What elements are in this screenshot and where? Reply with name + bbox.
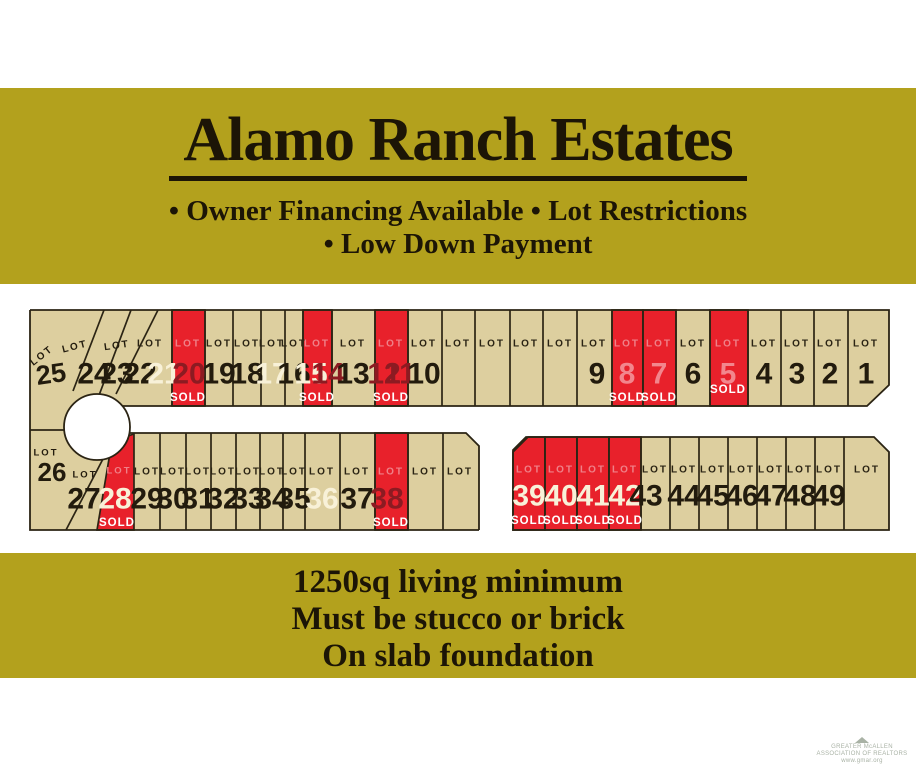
lot-label: LOT (137, 339, 163, 350)
lot-label: LOT (513, 339, 539, 350)
lot-number: 25 (34, 357, 68, 391)
lot-label: LOT (787, 465, 813, 476)
sold-label: SOLD (609, 392, 645, 404)
lot-label: LOT (160, 467, 186, 478)
sold-label: SOLD (607, 515, 643, 527)
lot-label: LOT (378, 467, 404, 478)
restriction-line-2: Must be stucco or brick (0, 601, 916, 638)
lot-label: LOT (680, 339, 706, 350)
lot-label: LOT (581, 339, 607, 350)
sold-label: SOLD (170, 392, 206, 404)
restrictions-text: 1250sq living minimum Must be stucco or … (0, 553, 916, 675)
lot-label: LOT (671, 465, 697, 476)
lot-number: 41 (576, 480, 609, 513)
sold-label: SOLD (373, 517, 409, 529)
restriction-line-1: 1250sq living minimum (0, 564, 916, 601)
lot-label: LOT (281, 467, 307, 478)
watermark-line-1: GREATER McALLEN (816, 744, 908, 751)
lot-number: 40 (544, 480, 577, 513)
sold-label: SOLD (99, 517, 135, 529)
cul-de-sac-circle (64, 394, 130, 460)
lot-label: LOT (234, 339, 260, 350)
flyer-page: Alamo Ranch Estates • Owner Financing Av… (0, 0, 916, 768)
lot-label: LOT (646, 339, 672, 350)
lot-label: LOT (411, 339, 437, 350)
lot-label: LOT (816, 465, 842, 476)
lot-label: LOT (235, 467, 261, 478)
lot-label: LOT (447, 467, 473, 478)
lot-label: LOT (853, 339, 879, 350)
lot-number: 3 (789, 358, 806, 391)
lot-number: 9 (589, 358, 606, 391)
sold-label: SOLD (511, 515, 547, 527)
restrictions-banner: 1250sq living minimum Must be stucco or … (0, 553, 916, 678)
lot-label: LOT (642, 465, 668, 476)
lot-label: LOT (344, 467, 370, 478)
watermark-line-2: ASSOCIATION OF REALTORS (816, 751, 908, 758)
lot-label: LOT (580, 465, 606, 476)
lot-label: LOT (548, 465, 574, 476)
lot-label: LOT (378, 339, 404, 350)
sold-label: SOLD (543, 515, 579, 527)
lot-number: 1 (858, 358, 875, 391)
lot-label: LOT (817, 339, 843, 350)
lot-number: 2 (822, 358, 839, 391)
lot-label: LOT (612, 465, 638, 476)
lot-label: LOT (784, 339, 810, 350)
sold-label: SOLD (373, 392, 409, 404)
lot-number: 26 (38, 457, 67, 487)
lot-number: 6 (685, 358, 702, 391)
lot-label: LOT (340, 339, 366, 350)
lot-number: 39 (512, 480, 545, 513)
lot-label: LOT (107, 466, 132, 477)
realtor-roof-icon (855, 737, 869, 743)
lot-label: LOT (715, 339, 741, 350)
lot-label: LOT (210, 467, 236, 478)
lot-label: LOT (758, 465, 784, 476)
sold-label: SOLD (575, 515, 611, 527)
lot-number: 7 (651, 358, 668, 391)
lot-label: LOT (479, 339, 505, 350)
lot-number: 8 (619, 358, 636, 391)
lot-label: LOT (309, 467, 335, 478)
lot-number: 49 (812, 480, 845, 513)
lot-number: 27 (67, 483, 100, 516)
lot-number: 37 (340, 483, 373, 516)
lot-label: LOT (175, 339, 201, 350)
lot-label: LOT (614, 339, 640, 350)
lot-number: 4 (756, 358, 773, 391)
sold-label: SOLD (710, 384, 746, 396)
lot-label: LOT (751, 339, 777, 350)
restriction-line-3: On slab foundation (0, 638, 916, 675)
lot-label: LOT (134, 467, 160, 478)
lot-label: LOT (854, 465, 880, 476)
lot-label: LOT (516, 465, 542, 476)
lot-number: 38 (370, 483, 403, 516)
lot-label: LOT (700, 465, 726, 476)
lot-label: LOT (729, 465, 755, 476)
watermark-line-3: www.gmar.org (816, 758, 908, 765)
lot-label: LOT (185, 467, 211, 478)
lot-label: LOT (412, 467, 438, 478)
lot-label: LOT (547, 339, 573, 350)
lot-label: LOT (73, 470, 98, 481)
realtor-watermark: GREATER McALLEN ASSOCIATION OF REALTORS … (816, 737, 908, 765)
sold-label: SOLD (641, 392, 677, 404)
lot-label: LOT (206, 339, 232, 350)
sold-label: SOLD (299, 392, 335, 404)
lot-number: 36 (305, 483, 338, 516)
lot-number: 13 (336, 358, 369, 391)
lot-label: LOT (304, 339, 330, 350)
lot-number: 43 (629, 480, 662, 513)
lot-number: 20 (172, 358, 205, 391)
lot-number: 28 (98, 483, 131, 516)
lot-number: 10 (407, 358, 440, 391)
lot-label: LOT (445, 339, 471, 350)
